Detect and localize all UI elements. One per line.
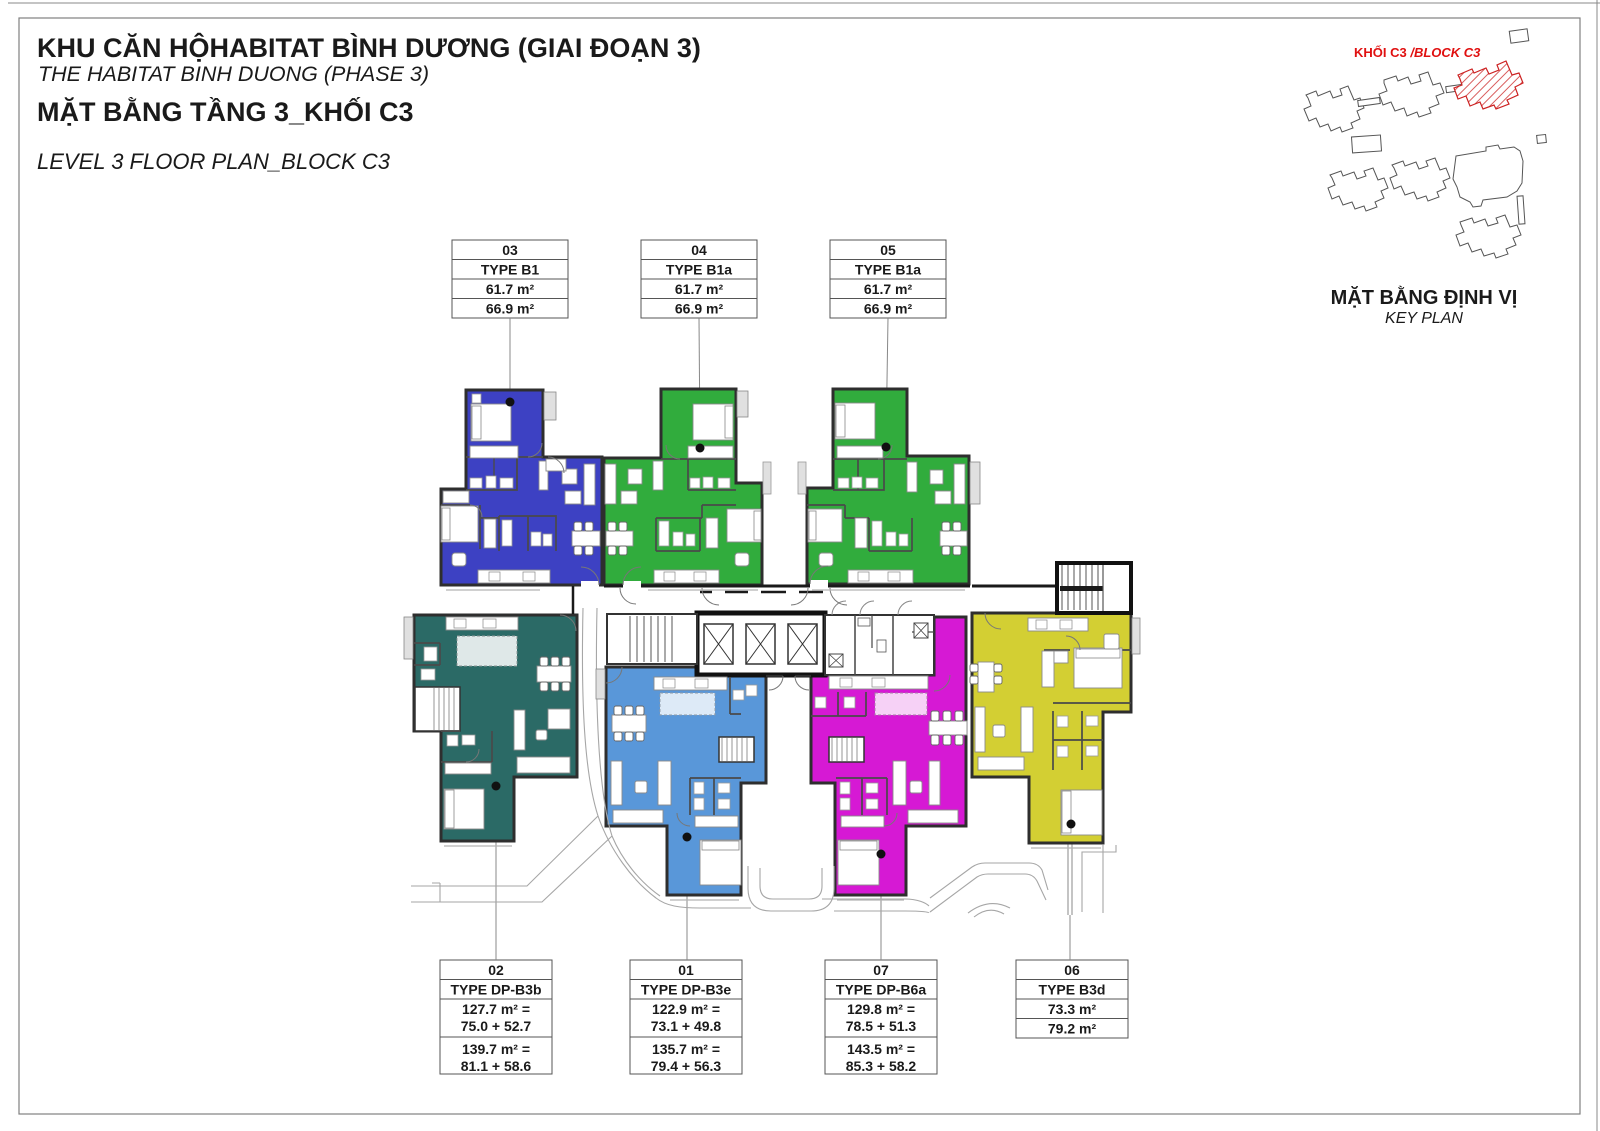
svg-text:TYPE DP-B6a: TYPE DP-B6a — [836, 982, 926, 998]
svg-text:75.0 + 52.7: 75.0 + 52.7 — [461, 1018, 532, 1034]
svg-text:127.7 m² =: 127.7 m² = — [462, 1001, 530, 1017]
svg-text:129.8 m² =: 129.8 m² = — [847, 1001, 915, 1017]
svg-text:KHỐI C3 /BLOCK C3: KHỐI C3 /BLOCK C3 — [1354, 45, 1481, 60]
svg-text:139.7 m² =: 139.7 m² = — [462, 1041, 530, 1057]
svg-text:03: 03 — [502, 242, 518, 258]
svg-text:73.3 m²: 73.3 m² — [1048, 1001, 1097, 1017]
svg-text:TYPE B1a: TYPE B1a — [666, 262, 732, 278]
svg-text:122.9 m² =: 122.9 m² = — [652, 1001, 720, 1017]
svg-text:TYPE B1a: TYPE B1a — [855, 262, 921, 278]
svg-text:135.7 m² =: 135.7 m² = — [652, 1041, 720, 1057]
svg-text:MẶT BẰNG TẦNG 3_KHỐI C3: MẶT BẰNG TẦNG 3_KHỐI C3 — [37, 95, 414, 127]
svg-text:04: 04 — [691, 242, 707, 258]
svg-text:01: 01 — [678, 962, 694, 978]
svg-text:81.1 + 58.6: 81.1 + 58.6 — [461, 1058, 532, 1074]
svg-text:05: 05 — [880, 242, 896, 258]
svg-text:85.3 + 58.2: 85.3 + 58.2 — [846, 1058, 917, 1074]
svg-text:KHU CĂN HỘHABITAT BÌNH DƯƠNG (: KHU CĂN HỘHABITAT BÌNH DƯƠNG (GIAI ĐOẠN … — [37, 32, 701, 63]
svg-text:61.7 m²: 61.7 m² — [486, 281, 535, 297]
svg-text:06: 06 — [1064, 962, 1080, 978]
svg-text:61.7 m²: 61.7 m² — [864, 281, 913, 297]
svg-text:143.5 m² =: 143.5 m² = — [847, 1041, 915, 1057]
svg-text:TYPE B3d: TYPE B3d — [1039, 982, 1106, 998]
svg-text:TYPE DP-B3b: TYPE DP-B3b — [450, 982, 541, 998]
svg-text:KEY PLAN: KEY PLAN — [1385, 310, 1463, 327]
svg-text:66.9 m²: 66.9 m² — [486, 301, 535, 317]
svg-text:TYPE B1: TYPE B1 — [481, 262, 540, 278]
svg-text:02: 02 — [488, 962, 504, 978]
svg-text:79.4 + 56.3: 79.4 + 56.3 — [651, 1058, 722, 1074]
svg-text:07: 07 — [873, 962, 889, 978]
svg-text:TYPE DP-B3e: TYPE DP-B3e — [641, 982, 731, 998]
svg-text:66.9 m²: 66.9 m² — [864, 301, 913, 317]
svg-text:79.2 m²: 79.2 m² — [1048, 1021, 1097, 1037]
svg-text:61.7 m²: 61.7 m² — [675, 281, 724, 297]
svg-text:66.9 m²: 66.9 m² — [675, 301, 724, 317]
svg-text:LEVEL 3 FLOOR PLAN_BLOCK C3: LEVEL 3 FLOOR PLAN_BLOCK C3 — [37, 149, 391, 174]
svg-text:THE HABITAT BINH DUONG (PHASE: THE HABITAT BINH DUONG (PHASE 3) — [38, 62, 429, 86]
svg-text:73.1 + 49.8: 73.1 + 49.8 — [651, 1018, 722, 1034]
svg-text:MẶT BẰNG ĐỊNH VỊ: MẶT BẰNG ĐỊNH VỊ — [1331, 285, 1518, 309]
svg-text:78.5 + 51.3: 78.5 + 51.3 — [846, 1018, 917, 1034]
